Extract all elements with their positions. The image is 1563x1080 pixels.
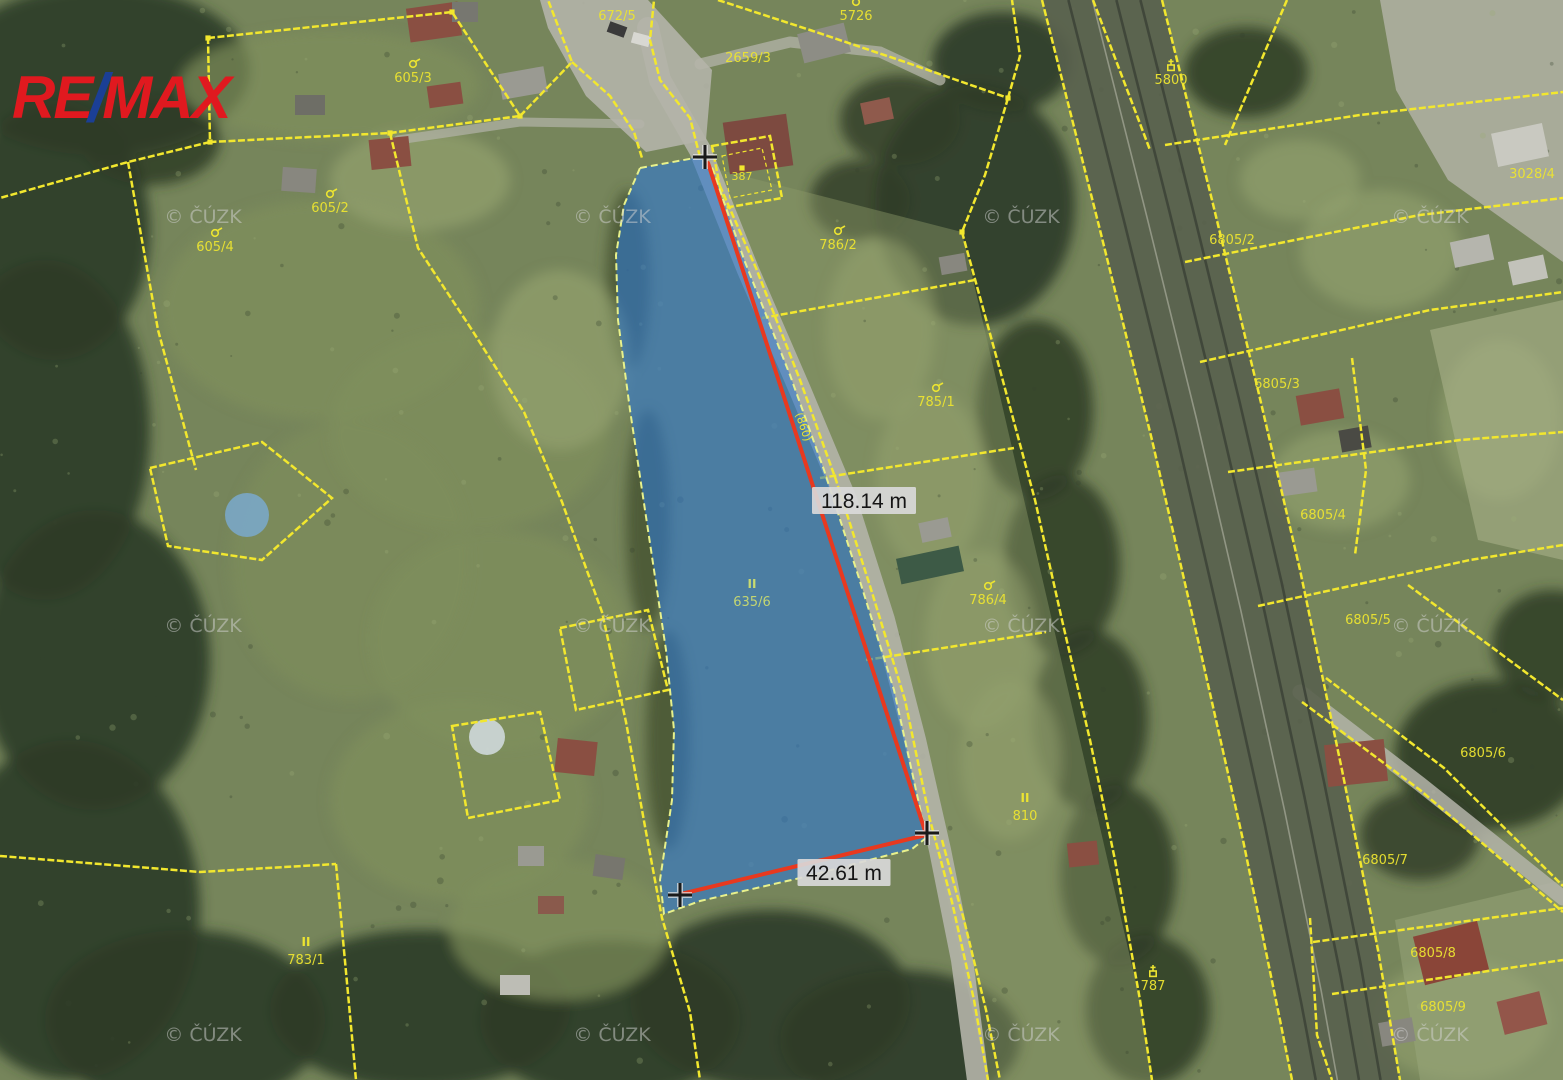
parcel-label: 672/5 — [598, 9, 635, 24]
grassland-II-icon: II — [748, 577, 757, 591]
parcel-label: 6805/7 — [1362, 853, 1408, 868]
speckle — [305, 58, 308, 61]
speckle — [138, 347, 140, 349]
vegetation-patch — [1240, 140, 1360, 220]
speckle — [240, 716, 243, 719]
speckle — [1032, 387, 1036, 391]
speckle — [1025, 130, 1031, 136]
measurement-label: 118.14 m — [812, 487, 916, 514]
speckle — [596, 321, 602, 327]
speckle — [1197, 1069, 1201, 1073]
speckle — [421, 1071, 426, 1076]
speckle — [1147, 691, 1150, 694]
speckle — [231, 58, 233, 60]
parcel-label: 786/2 — [819, 238, 856, 253]
speckle — [1343, 547, 1346, 550]
speckle — [478, 385, 484, 391]
logo-slash: / — [88, 60, 105, 136]
vegetation-patch — [330, 130, 510, 230]
speckle — [230, 355, 232, 357]
pool — [225, 493, 269, 537]
building-roof — [500, 975, 530, 995]
building-roof — [281, 167, 317, 193]
building-roof — [723, 114, 794, 174]
speckle — [1498, 589, 1502, 593]
speckle — [280, 264, 284, 268]
vegetation-patch — [230, 420, 470, 700]
speckle — [1028, 607, 1031, 610]
speckle — [926, 61, 932, 67]
map-canvas[interactable]: 672/557262659/3605/3605/2605/4387786/278… — [0, 0, 1563, 1080]
speckle — [896, 447, 899, 450]
speckle — [1105, 916, 1111, 922]
speckle — [1435, 641, 1442, 648]
speckle — [155, 696, 158, 699]
speckle — [338, 223, 344, 229]
speckle — [245, 724, 250, 729]
speckle — [214, 491, 220, 497]
speckle — [521, 948, 525, 952]
speckle — [1271, 410, 1276, 415]
speckle — [439, 854, 445, 860]
parcel-label: 6805/9 — [1420, 1000, 1466, 1015]
speckle — [109, 724, 115, 730]
speckle — [432, 620, 437, 625]
speckle — [974, 468, 976, 470]
speckle — [594, 538, 598, 542]
parcel-label: 3028/4 — [1509, 167, 1555, 182]
speckle — [973, 558, 977, 562]
speckle — [53, 520, 58, 525]
cuzk-watermark: © ČÚZK — [573, 1022, 651, 1046]
speckle — [1006, 819, 1012, 825]
cuzk-watermark: © ČÚZK — [164, 204, 242, 228]
speckle — [992, 998, 997, 1003]
speckle — [1415, 164, 1419, 168]
speckle — [592, 890, 597, 895]
speckle — [522, 398, 528, 404]
speckle — [152, 423, 156, 427]
speckle — [461, 480, 466, 485]
speckle — [176, 171, 182, 177]
speckle — [971, 903, 974, 906]
speckle — [1393, 397, 1398, 402]
speckle — [140, 372, 142, 374]
speckle — [166, 909, 170, 913]
speckle — [616, 883, 620, 887]
speckle — [481, 1000, 487, 1006]
speckle — [566, 621, 568, 623]
speckle — [394, 313, 400, 319]
speckle — [161, 583, 165, 587]
speckle — [1338, 101, 1344, 107]
speckle — [343, 489, 349, 495]
parcel-label: 785/1 — [917, 395, 954, 410]
speckle — [393, 368, 399, 374]
grassland-II-icon: II — [302, 935, 311, 949]
building-roof — [554, 738, 597, 776]
speckle — [110, 1037, 114, 1041]
speckle — [1056, 340, 1060, 344]
speckle — [1480, 133, 1486, 139]
speckle — [1140, 957, 1143, 960]
vegetation-patch — [490, 270, 630, 450]
parcel-label: 787 — [1141, 979, 1166, 994]
speckle — [445, 904, 448, 907]
speckle — [410, 902, 416, 908]
speckle — [479, 836, 484, 841]
speckle — [383, 733, 390, 740]
speckle — [78, 368, 81, 371]
speckle — [1377, 122, 1380, 125]
cuzk-watermark: © ČÚZK — [164, 613, 242, 637]
speckle — [986, 733, 989, 736]
speckle — [384, 52, 390, 58]
speckle — [248, 644, 253, 649]
speckle — [290, 771, 295, 776]
speckle — [1126, 1051, 1129, 1054]
speckle — [1471, 678, 1474, 681]
speckle — [1011, 738, 1016, 743]
speckle — [330, 347, 334, 351]
speckle — [385, 550, 389, 554]
speckle — [0, 454, 3, 457]
boundary-node — [205, 35, 210, 40]
speckle — [1002, 987, 1008, 993]
parcel-label: 5726 — [839, 9, 872, 24]
speckle — [1303, 200, 1306, 203]
speckle — [862, 307, 865, 310]
speckle — [612, 770, 618, 776]
speckle — [855, 168, 859, 172]
speckle — [935, 176, 940, 181]
cuzk-watermark: © ČÚZK — [1391, 613, 1469, 637]
speckle — [1490, 10, 1496, 16]
building-roof — [1324, 739, 1388, 787]
speckle — [200, 8, 206, 14]
speckle — [163, 300, 170, 307]
speckle — [1210, 958, 1215, 963]
speckle — [1040, 487, 1043, 490]
speckle — [1396, 651, 1402, 657]
speckle — [863, 320, 866, 323]
speckle — [867, 1004, 871, 1008]
speckle — [1220, 838, 1226, 844]
speckle — [1453, 310, 1456, 313]
speckle — [1264, 134, 1269, 139]
speckle — [1511, 516, 1517, 522]
cuzk-watermark: © ČÚZK — [982, 1022, 1060, 1046]
speckle — [151, 235, 153, 237]
speckle — [1365, 601, 1368, 604]
speckle — [253, 237, 255, 239]
speckle — [1352, 10, 1356, 14]
parcel-label: 6805/4 — [1300, 508, 1346, 523]
cuzk-watermark: © ČÚZK — [1391, 1022, 1469, 1046]
boundary-node — [959, 229, 964, 234]
measurement-value: 42.61 m — [806, 862, 882, 885]
speckle — [407, 954, 412, 959]
building-roof — [1279, 468, 1318, 497]
logo-re: RE — [12, 64, 91, 131]
speckle — [1100, 921, 1104, 925]
speckle — [922, 267, 927, 272]
speckle — [0, 789, 6, 795]
speckle — [76, 735, 81, 740]
speckle — [563, 535, 569, 541]
speckle — [1062, 126, 1068, 132]
speckle — [542, 169, 547, 174]
building-roof — [369, 136, 412, 170]
measurement-label: 42.61 m — [798, 859, 891, 886]
speckle — [1550, 62, 1554, 66]
speckle — [324, 519, 331, 526]
parcel-label: 786/4 — [969, 593, 1006, 608]
speckle — [94, 1064, 98, 1068]
cuzk-watermark: © ČÚZK — [982, 613, 1060, 637]
speckle — [371, 924, 375, 928]
speckle — [97, 160, 103, 166]
speckle — [186, 916, 191, 921]
speckle — [385, 478, 387, 480]
speckle — [1236, 157, 1240, 161]
speckle — [553, 295, 558, 300]
speckle — [1556, 815, 1558, 817]
parcel-label: 810 — [1013, 809, 1038, 824]
speckle — [1143, 434, 1145, 436]
speckle — [1331, 42, 1337, 48]
speckle — [437, 877, 444, 884]
speckle — [439, 847, 442, 850]
boundary-node — [449, 9, 454, 14]
speckle — [1101, 687, 1106, 692]
speckle — [884, 917, 890, 923]
logo-max: MAX — [102, 64, 229, 131]
boundary-node — [207, 139, 212, 144]
speckle — [1492, 708, 1497, 713]
speckle — [115, 1076, 118, 1079]
speckle — [13, 489, 16, 492]
vegetation-patch — [840, 75, 960, 165]
remax-logo: RE/MAX — [12, 56, 230, 134]
speckle — [245, 311, 251, 317]
cuzk-watermark: © ČÚZK — [573, 204, 651, 228]
parcel-label: 6805/3 — [1254, 377, 1300, 392]
speckle — [391, 330, 393, 332]
speckle — [1398, 512, 1402, 516]
speckle — [133, 781, 139, 787]
speckle — [996, 850, 1002, 856]
boundary-node — [517, 113, 522, 118]
speckle — [931, 321, 936, 326]
speckle — [1297, 527, 1301, 531]
parcel-label: 2659/3 — [725, 51, 771, 66]
cuzk-watermark: © ČÚZK — [164, 1022, 242, 1046]
parcel-label: 6805/2 — [1209, 233, 1255, 248]
pool — [469, 719, 505, 755]
speckle — [52, 439, 58, 445]
speckle — [390, 1063, 394, 1067]
speckle — [615, 411, 619, 415]
parcel-label: 605/4 — [196, 240, 233, 255]
speckle — [1408, 638, 1413, 643]
building-roof — [295, 95, 325, 115]
speckle — [396, 905, 402, 911]
speckle — [1077, 470, 1082, 475]
boundary-node — [387, 130, 392, 135]
speckle — [498, 457, 502, 461]
building-roof — [593, 854, 626, 880]
speckle — [1171, 845, 1176, 850]
vegetation-patch — [1184, 27, 1308, 117]
speckle — [175, 343, 178, 346]
speckle — [546, 221, 550, 225]
cadastral-map-view[interactable]: 672/557262659/3605/3605/2605/4387786/278… — [0, 0, 1563, 1080]
speckle — [547, 1073, 549, 1075]
speckle — [630, 548, 635, 553]
building-roof — [518, 846, 544, 866]
speckle — [162, 471, 164, 473]
speckle — [1120, 987, 1124, 991]
speckle — [1037, 492, 1040, 495]
speckle — [836, 219, 839, 222]
speckle — [1067, 418, 1070, 421]
parcel-label: 635/6 — [733, 595, 770, 610]
parcel-label: 783/1 — [287, 953, 324, 968]
speckle — [497, 136, 500, 139]
speckle — [39, 52, 41, 54]
speckle — [1101, 453, 1107, 459]
speckle — [999, 68, 1004, 73]
speckle — [892, 154, 897, 159]
speckle — [1431, 536, 1437, 542]
speckle — [1425, 249, 1427, 251]
speckle — [55, 365, 58, 368]
cuzk-watermark: © ČÚZK — [573, 613, 651, 637]
building-roof — [427, 82, 464, 109]
speckle — [1508, 757, 1514, 763]
speckle — [1076, 481, 1081, 486]
speckle — [556, 202, 561, 207]
speckle — [1185, 824, 1188, 827]
speckle — [1240, 33, 1245, 38]
speckle — [210, 712, 216, 718]
speckle — [230, 795, 233, 798]
speckle — [157, 361, 160, 364]
speckle — [353, 977, 358, 982]
speckle — [1389, 535, 1392, 538]
speckle — [62, 44, 66, 48]
building-roof — [1067, 840, 1099, 867]
speckle — [1134, 886, 1137, 889]
speckle — [467, 115, 473, 121]
speckle — [130, 714, 136, 720]
speckle — [1098, 264, 1100, 266]
speckle — [476, 564, 480, 568]
speckle — [831, 393, 836, 398]
speckle — [1160, 573, 1167, 580]
speckle — [966, 741, 972, 747]
speckle — [296, 71, 298, 73]
measurement-value: 118.14 m — [821, 490, 907, 513]
speckle — [797, 73, 801, 77]
speckle — [938, 494, 941, 497]
speckle — [67, 472, 70, 475]
cuzk-watermark: © ČÚZK — [982, 204, 1060, 228]
speckle — [1558, 708, 1561, 711]
speckle — [114, 629, 119, 634]
speckle — [226, 27, 231, 32]
parcel-label: 387 — [732, 170, 753, 183]
speckle — [298, 494, 301, 497]
speckle — [637, 1058, 643, 1064]
cuzk-watermark: © ČÚZK — [1391, 204, 1469, 228]
speckle — [1556, 278, 1562, 284]
speckle — [1493, 308, 1496, 311]
speckle — [65, 1000, 71, 1006]
speckle — [405, 1023, 408, 1026]
vegetation-patch — [450, 860, 670, 1000]
parcel-label: 605/2 — [311, 201, 348, 216]
speckle — [8, 790, 12, 794]
speckle — [14, 838, 18, 842]
grassland-II-icon: II — [1021, 791, 1030, 805]
speckle — [948, 826, 953, 831]
speckle — [1530, 764, 1535, 769]
speckle — [1057, 1020, 1060, 1023]
speckle — [38, 900, 44, 906]
parcel-label: 6805/5 — [1345, 613, 1391, 628]
parcel-label: 6805/6 — [1460, 746, 1506, 761]
parcel-label: 5800 — [1154, 73, 1187, 88]
speckle — [40, 656, 45, 661]
speckle — [331, 513, 336, 518]
speckle — [1193, 29, 1199, 35]
speckle — [598, 994, 601, 997]
speckle — [399, 410, 404, 415]
boundary-node — [1005, 95, 1010, 100]
building-roof — [538, 896, 564, 914]
speckle — [128, 1041, 131, 1044]
speckle — [1455, 701, 1457, 703]
speckle — [14, 181, 18, 185]
parcel-label: 6805/8 — [1410, 946, 1456, 961]
speckle — [828, 1062, 833, 1067]
speckle — [572, 169, 574, 171]
speckle — [198, 135, 201, 138]
parcel-label: 605/3 — [394, 71, 431, 86]
